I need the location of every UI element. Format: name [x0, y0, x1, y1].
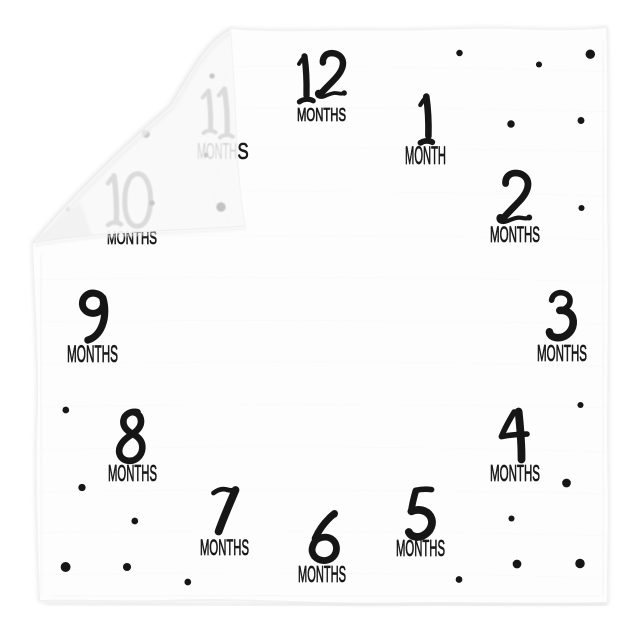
svg-text:MONTHS: MONTHS [396, 535, 445, 561]
svg-text:S: S [238, 139, 249, 164]
svg-text:MONTHS: MONTHS [537, 340, 587, 366]
svg-text:MONTHS: MONTHS [490, 460, 540, 486]
svg-text:MONTHS: MONTHS [108, 460, 157, 486]
svg-text:MONTHS: MONTHS [67, 341, 118, 368]
svg-text:MONTHS: MONTHS [297, 105, 346, 126]
svg-text:MONTHS: MONTHS [490, 222, 540, 247]
svg-text:MONTHS: MONTHS [200, 535, 249, 560]
svg-text:MONTH: MONTH [405, 143, 446, 170]
svg-text:MONTHS: MONTHS [298, 561, 346, 587]
svg-text:MONTH: MONTH [197, 138, 237, 164]
